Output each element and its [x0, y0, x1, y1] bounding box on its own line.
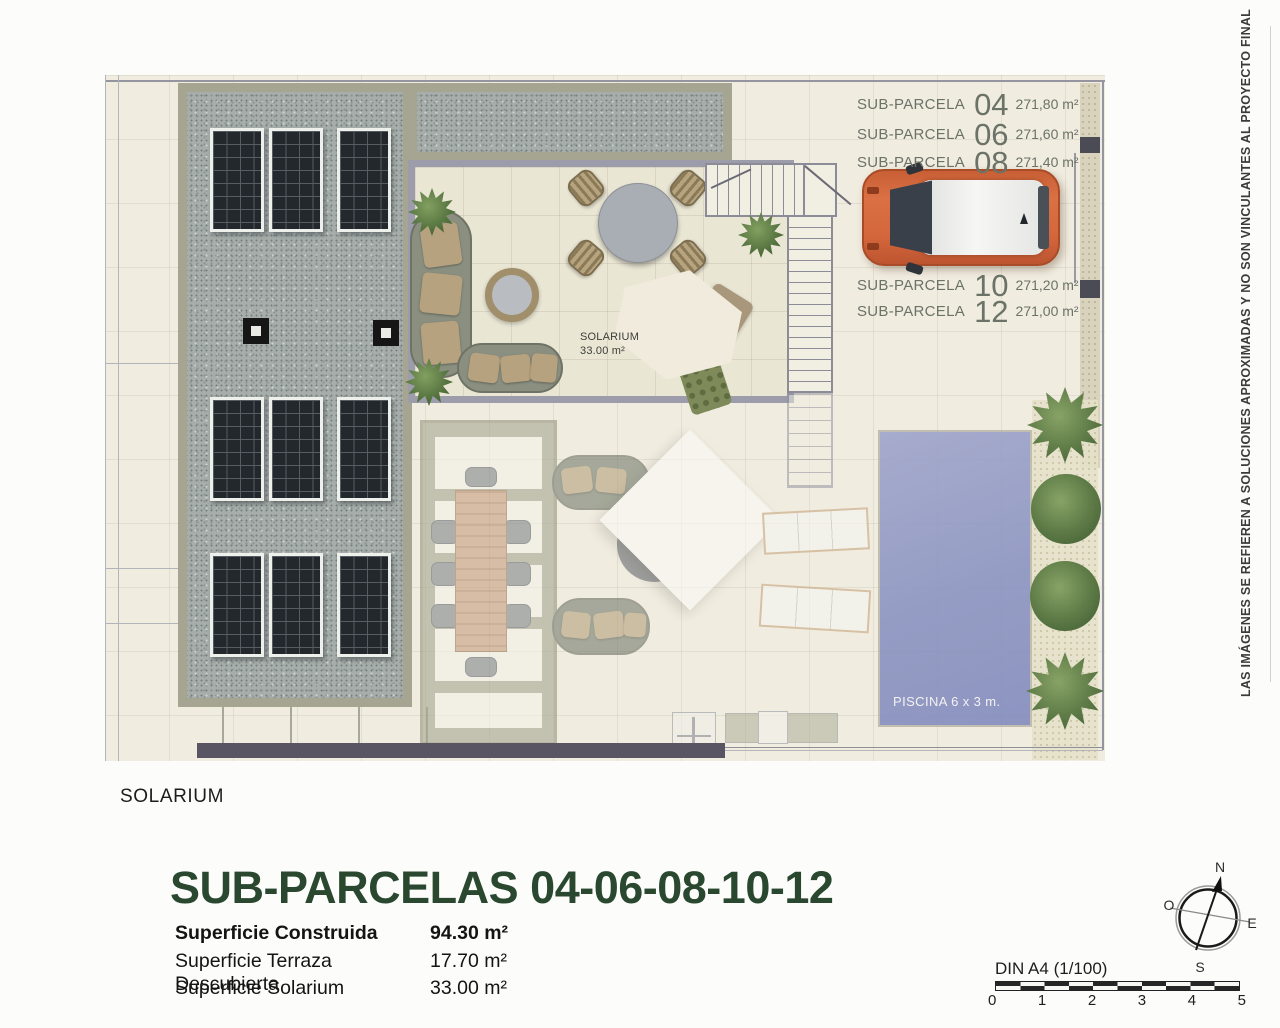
page-title: SUB-PARCELAS 04-06-08-10-12 [170, 862, 833, 914]
terrace-dining-table [598, 183, 678, 263]
scale-tick: 1 [1038, 992, 1046, 1009]
surface-value: 94.30 m² [430, 922, 508, 945]
subparcela-area: 271,00 m² [1016, 303, 1079, 319]
roof-vent [243, 318, 269, 344]
car-roof [919, 180, 1045, 255]
subparcela-label-12: SUB-PARCELA 12 271,00 m² [857, 295, 1157, 327]
subparcela-area: 271,40 m² [1016, 154, 1079, 170]
scale-label: DIN A4 (1/100) [995, 959, 1107, 979]
compass-north-label: N [1215, 859, 1225, 875]
solar-panel [210, 397, 264, 501]
page: SOLARIUM 33.00 m² SUB-PARCELA 04 [0, 0, 1280, 1028]
subparcela-prefix: SUB-PARCELA [857, 277, 965, 294]
scale-bar-row-bottom [996, 986, 1239, 990]
scale-tick: 5 [1238, 992, 1246, 1009]
surface-row-solarium: Superficie Solarium 33.00 m² [175, 977, 655, 1000]
swimming-pool: PISCINA 6 x 3 m. [878, 430, 1032, 727]
surface-label: Superficie Construida [175, 922, 430, 945]
pool-label: PISCINA 6 x 3 m. [893, 694, 1001, 709]
floor-label: SOLARIUM [120, 786, 224, 808]
wood-dining-table [455, 490, 507, 652]
subparcela-prefix: SUB-PARCELA [857, 303, 965, 320]
solar-panel [210, 128, 264, 232]
staircase-flight-below [787, 393, 833, 488]
lower-sofa-lower [552, 598, 650, 655]
plan-left-boundary-inner [118, 75, 119, 761]
compass-rose: N S O E [1162, 858, 1258, 976]
bottom-boundary-line [725, 747, 1103, 751]
round-tree [1030, 561, 1100, 631]
solarium-annotation-line1: SOLARIUM [580, 331, 639, 345]
compass-east-label: E [1247, 915, 1256, 931]
subparcela-prefix: SUB-PARCELA [857, 126, 965, 143]
parked-car [862, 169, 1060, 266]
dining-chair [503, 520, 531, 544]
car-windshield [890, 179, 932, 256]
subparcela-number: 12 [974, 296, 1008, 327]
plan-top-boundary [105, 80, 1105, 82]
car-rear-window [1038, 186, 1049, 249]
floor-plan: SOLARIUM 33.00 m² SUB-PARCELA 04 [105, 75, 1105, 761]
scale-tick: 4 [1188, 992, 1196, 1009]
terrace-sofa-bottom [457, 343, 563, 393]
subparcela-label-08: SUB-PARCELA 08 271,40 m² [857, 146, 1157, 178]
solarium-annotation-line2: 33.00 m² [580, 345, 639, 359]
bottom-wall-bar [197, 743, 725, 758]
car-headlight [867, 187, 879, 194]
surface-row-construida: Superficie Construida 94.30 m² [175, 922, 655, 945]
subparcela-number: 08 [974, 147, 1008, 178]
walkway-divider-3 [105, 623, 178, 624]
dining-chair [503, 562, 531, 586]
subparcela-prefix: SUB-PARCELA [857, 154, 965, 171]
subparcela-area: 271,60 m² [1016, 126, 1079, 142]
terrace-round-ottoman [485, 268, 539, 322]
surface-value: 33.00 m² [430, 977, 507, 1000]
sun-lounger [759, 584, 871, 634]
solar-panel [210, 553, 264, 657]
solar-panel [269, 128, 323, 232]
subparcela-label-04: SUB-PARCELA 04 271,80 m² [857, 88, 1157, 120]
scale-tick: 3 [1138, 992, 1146, 1009]
sink-unit [758, 711, 788, 744]
subparcela-number: 04 [974, 89, 1008, 120]
plan-right-boundary [1102, 80, 1104, 750]
solar-panel [269, 553, 323, 657]
page-edge-line [1270, 26, 1271, 682]
compass-west-label: O [1164, 897, 1175, 913]
solar-panel [269, 397, 323, 501]
walkway-divider-1 [105, 363, 178, 364]
subparcela-area: 271,20 m² [1016, 277, 1079, 293]
plan-left-boundary-outer [105, 75, 106, 761]
roof-gravel-strip-top [408, 83, 732, 161]
joist-line [222, 707, 224, 743]
scale-ticks: 0 1 2 3 4 5 [988, 992, 1246, 1009]
round-tree [1031, 474, 1101, 544]
car-headlight [867, 243, 879, 250]
staircase-lower-flight [787, 215, 833, 393]
solar-panel [337, 553, 391, 657]
scale-bar [995, 981, 1240, 991]
compass-south-label: S [1195, 959, 1204, 975]
dining-chair [465, 657, 497, 677]
sun-lounger [762, 507, 870, 554]
subparcela-area: 271,80 m² [1016, 96, 1079, 112]
solar-panel [337, 397, 391, 501]
staircase-upper-flight [705, 163, 805, 217]
joist-line [358, 707, 360, 743]
solarium-area-annotation: SOLARIUM 33.00 m² [580, 331, 639, 359]
roof-vent [373, 320, 399, 346]
dining-chair [465, 467, 497, 487]
walkway-divider-2 [105, 568, 178, 569]
disclaimer-text: LAS IMÁGENES SE REFIEREN A SOLUCIONES AP… [1232, 28, 1260, 678]
scale-tick: 0 [988, 992, 996, 1009]
dining-chair [503, 604, 531, 628]
scale-tick: 2 [1088, 992, 1096, 1009]
subparcela-prefix: SUB-PARCELA [857, 96, 965, 113]
surface-label: Superficie Solarium [175, 977, 430, 1000]
joist-line [290, 707, 292, 743]
solar-panel [337, 128, 391, 232]
